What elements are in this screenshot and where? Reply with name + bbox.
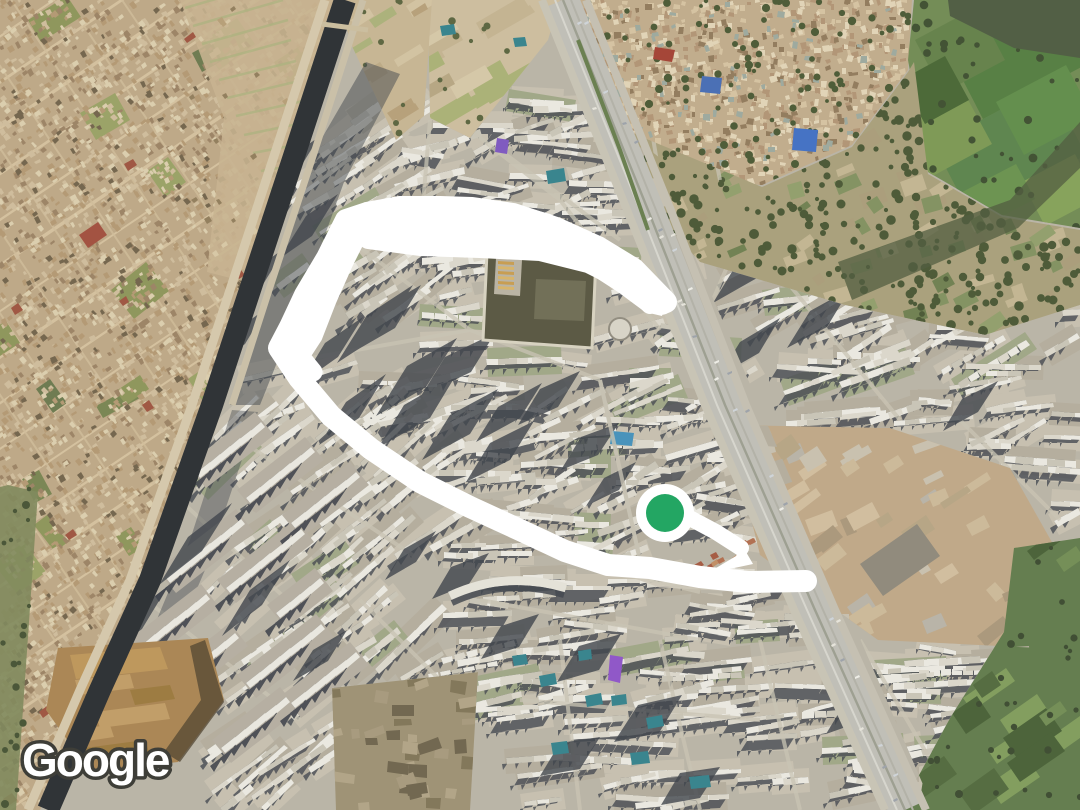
svg-text:Google: Google (22, 734, 170, 786)
